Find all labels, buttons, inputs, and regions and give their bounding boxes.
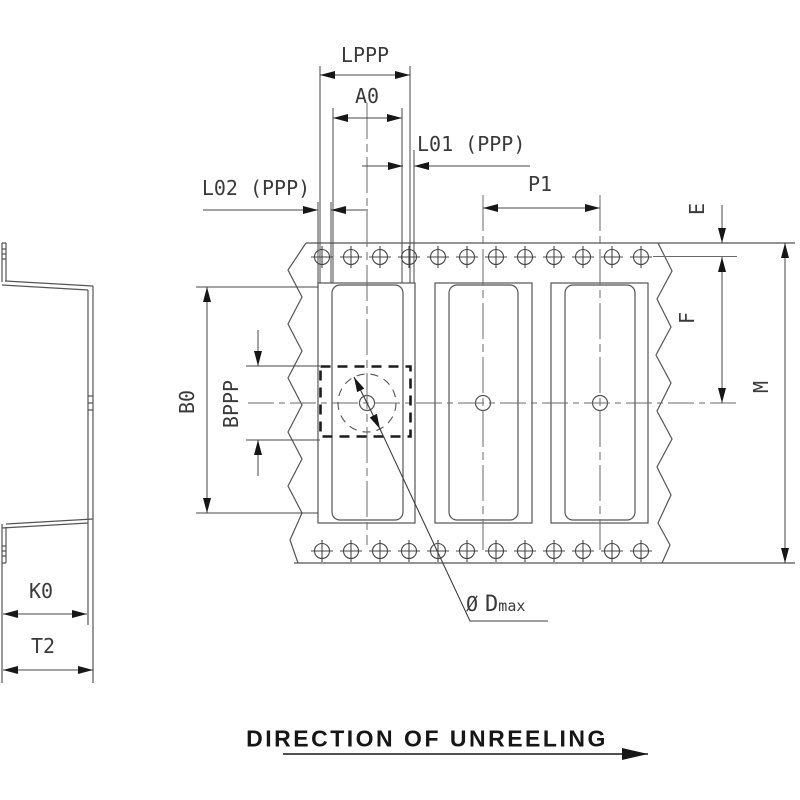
label-p1: P1 [528,173,552,195]
label-bppp: BPPP [220,380,242,428]
technical-drawing [0,0,800,800]
label-e: E [686,203,708,215]
dmax-name: D [485,592,498,617]
label-m: M [750,381,772,393]
label-a0: A0 [355,85,379,107]
component-outline [321,367,411,437]
label-l02: L02 (PPP) [202,177,310,199]
left-dimension-lines [196,287,320,513]
tape-side-view [2,243,93,683]
label-l01: L01 (PPP) [417,133,525,155]
label-f: F [676,312,698,324]
label-b0: B0 [176,390,198,414]
sprocket-holes [311,246,652,562]
label-dmax: ØDmax [466,592,525,617]
drawing-canvas: LPPP A0 L01 (PPP) L02 (PPP) P1 E F M B0 … [0,0,800,800]
label-t2: T2 [31,635,55,657]
center-lines [248,103,737,550]
dmax-leader [354,377,548,621]
diameter-symbol: Ø [466,592,478,616]
dmax-subscript: max [498,597,525,615]
label-k0: K0 [29,580,53,602]
label-lppp: LPPP [341,44,389,66]
direction-of-unreeling-label: DIRECTION OF UNREELING [246,726,608,753]
